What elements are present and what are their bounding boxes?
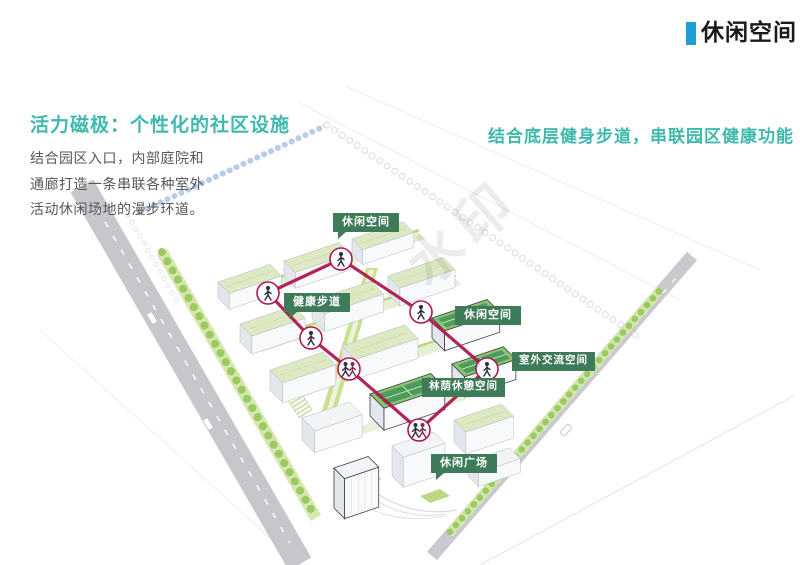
accent-bar-icon xyxy=(686,22,696,45)
left-text-block: 活力磁极：个性化的社区设施 结合园区入口，内部庭院和 通廊打造一条串联各种室外 … xyxy=(30,110,290,223)
slide: 水印 休闲空间 活力磁极：个性化的社区设施 结合园区入口，内部庭院和 通廊打造一… xyxy=(0,0,800,565)
body-line: 通廊打造一条串联各种室外 xyxy=(30,172,290,198)
label-leisure-plaza: 休闲广场 xyxy=(431,454,497,473)
pointer-icon xyxy=(338,231,347,239)
pointer-icon xyxy=(289,311,298,319)
label-leisure-space-right: 休闲空间 xyxy=(455,306,521,325)
body-line: 活动休闲场地的漫步环道。 xyxy=(30,197,290,223)
label-leisure-space-top: 休闲空间 xyxy=(333,213,399,232)
site-axonometric-diagram xyxy=(0,0,800,565)
pointer-icon xyxy=(436,472,445,480)
body-line: 结合园区入口，内部庭院和 xyxy=(30,146,290,172)
page-title: 休闲空间 xyxy=(701,19,797,47)
page-header: 休闲空间 xyxy=(686,19,797,47)
right-subtitle: 结合底层健身步道，串联园区健康功能 xyxy=(488,122,794,147)
label-shaded-rest: 林荫休憩空间 xyxy=(422,378,505,397)
label-health-trail: 健康步道 xyxy=(284,293,350,312)
label-outdoor-exchange: 室外交流空间 xyxy=(512,352,595,371)
section-body: 结合园区入口，内部庭院和 通廊打造一条串联各种室外 活动休闲场地的漫步环道。 xyxy=(30,146,290,223)
section-heading: 活力磁极：个性化的社区设施 xyxy=(30,110,290,137)
